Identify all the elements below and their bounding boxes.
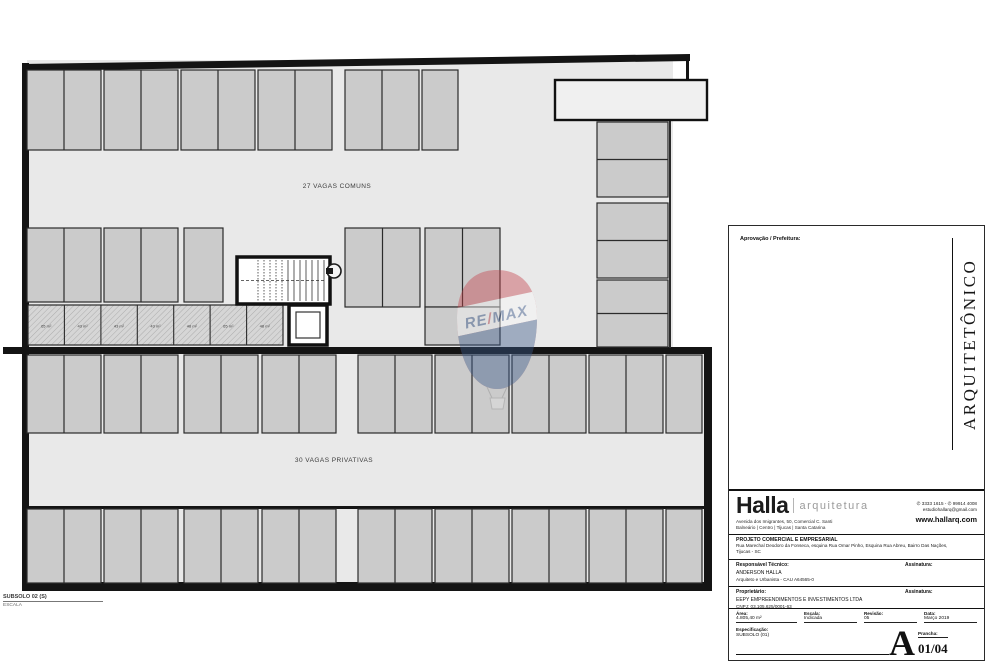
- brand-address-line2: Balneário | Centro | Tijucas | Santa Cat…: [736, 525, 869, 531]
- brand-logo-divider: [793, 498, 794, 513]
- responsible-label: Responsável Técnico:: [736, 562, 905, 568]
- plan-caption-scale: ESCALA: [3, 603, 123, 608]
- project-address-line2: Tijucas - SC: [736, 549, 977, 555]
- section-marker: [326, 264, 341, 278]
- owner-cnpj: CNPJ: 03.105.625/0001-63: [736, 604, 905, 609]
- owner-signature-label: Assinatura:: [905, 589, 977, 608]
- responsible-section: Responsável Técnico: ANDERSON HALLA Arqu…: [729, 559, 984, 586]
- stall-area-label: 43 m²: [114, 324, 125, 329]
- parking-stalls-top-row: [27, 70, 458, 150]
- brand-identity: Halla arquitetura Avenida dos Imigrantes…: [736, 494, 869, 534]
- revision-value: 05: [864, 616, 917, 623]
- lower-zone-label: 30 VAGAS PRIVATIVAS: [295, 457, 373, 464]
- parking-level-plan: 65 m² 43 m² 43 m² 43 m² 48 m² 65 m² 48 m…: [0, 0, 720, 620]
- brand-email: estudiohallarq@gmail.com: [916, 507, 977, 513]
- access-ramp: [555, 80, 707, 120]
- responsible-name: ANDERSON HALLA: [736, 570, 905, 576]
- owner-section: Proprietário: EEPY EMPREENDIMENTOS E INV…: [729, 586, 984, 608]
- sheet-number: 01/04: [918, 641, 948, 657]
- stall-area-label: 43 m²: [150, 324, 161, 329]
- approval-label: Aprovação / Prefeitura:: [740, 236, 801, 242]
- title-block: Aprovação / Prefeitura: ARQUITETÔNICO Ha…: [728, 225, 985, 661]
- brand-name: Halla: [736, 494, 788, 517]
- sheet-section: Especificação: SUBSOLO (01) A Prancha: 0…: [729, 624, 984, 660]
- stairwell: [237, 257, 330, 304]
- project-section: PROJETO COMERCIAL E EMPRESARIAL Rua Mare…: [729, 534, 984, 559]
- sheet-label: Prancha:: [918, 631, 948, 638]
- architectural-sheet: 65 m² 43 m² 43 m² 43 m² 48 m² 65 m² 48 m…: [0, 0, 1000, 667]
- title-block-lower: Halla arquitetura Avenida dos Imigrantes…: [729, 489, 984, 660]
- sheet-letter: A: [889, 630, 915, 657]
- date-value: Março 2019: [924, 616, 977, 623]
- plan-caption: SUBSOLO 02 (S) ESCALA: [3, 594, 123, 608]
- responsible-signature-label: Assinatura:: [905, 562, 977, 586]
- elevator-shaft: [289, 305, 327, 345]
- discipline-divider: [952, 238, 953, 450]
- owner-name: EEPY EMPREENDIMENTOS E INVESTIMENTOS LTD…: [736, 597, 905, 603]
- stall-area-label: 48 m²: [187, 324, 198, 329]
- spec-label: Especificação:: [736, 627, 889, 632]
- stall-area-label: 48 m²: [260, 324, 271, 329]
- spec-value: SUBSOLO (01): [736, 633, 889, 638]
- brand-tagline: arquitetura: [799, 500, 868, 512]
- scale-value: Indicada: [804, 616, 857, 623]
- plan-caption-title: SUBSOLO 02 (S): [3, 594, 103, 602]
- right-column-stalls: [597, 122, 668, 347]
- hatched-stalls: 65 m² 43 m² 43 m² 43 m² 48 m² 65 m² 48 m…: [28, 305, 283, 345]
- discipline-label: ARQUITETÔNICO: [960, 238, 980, 450]
- stall-area-label: 65 m²: [223, 324, 234, 329]
- area-value: 4.805,40 m²: [736, 616, 797, 623]
- stall-area-label: 65 m²: [41, 324, 52, 329]
- project-address-line1: Rua Marechal Deodoro da Fonseca, esquina…: [736, 543, 977, 549]
- stall-area-label: 43 m²: [77, 324, 88, 329]
- owner-label: Proprietário:: [736, 589, 905, 595]
- brand-section: Halla arquitetura Avenida dos Imigrantes…: [729, 489, 984, 534]
- responsible-role: Arquiteto e Urbanista - CAU A64565-0: [736, 577, 905, 582]
- brand-contacts: ✆ 3333 1615 - ✆ 99914 4008 estudiohallar…: [916, 494, 977, 534]
- upper-zone-label: 27 VAGAS COMUNS: [303, 183, 372, 190]
- brand-website: www.hallarq.com: [916, 515, 977, 524]
- fields-row: Área: 4.805,40 m² Escala: Indicada Revis…: [729, 608, 984, 624]
- sheet-number-block: A Prancha: 01/04: [889, 626, 977, 657]
